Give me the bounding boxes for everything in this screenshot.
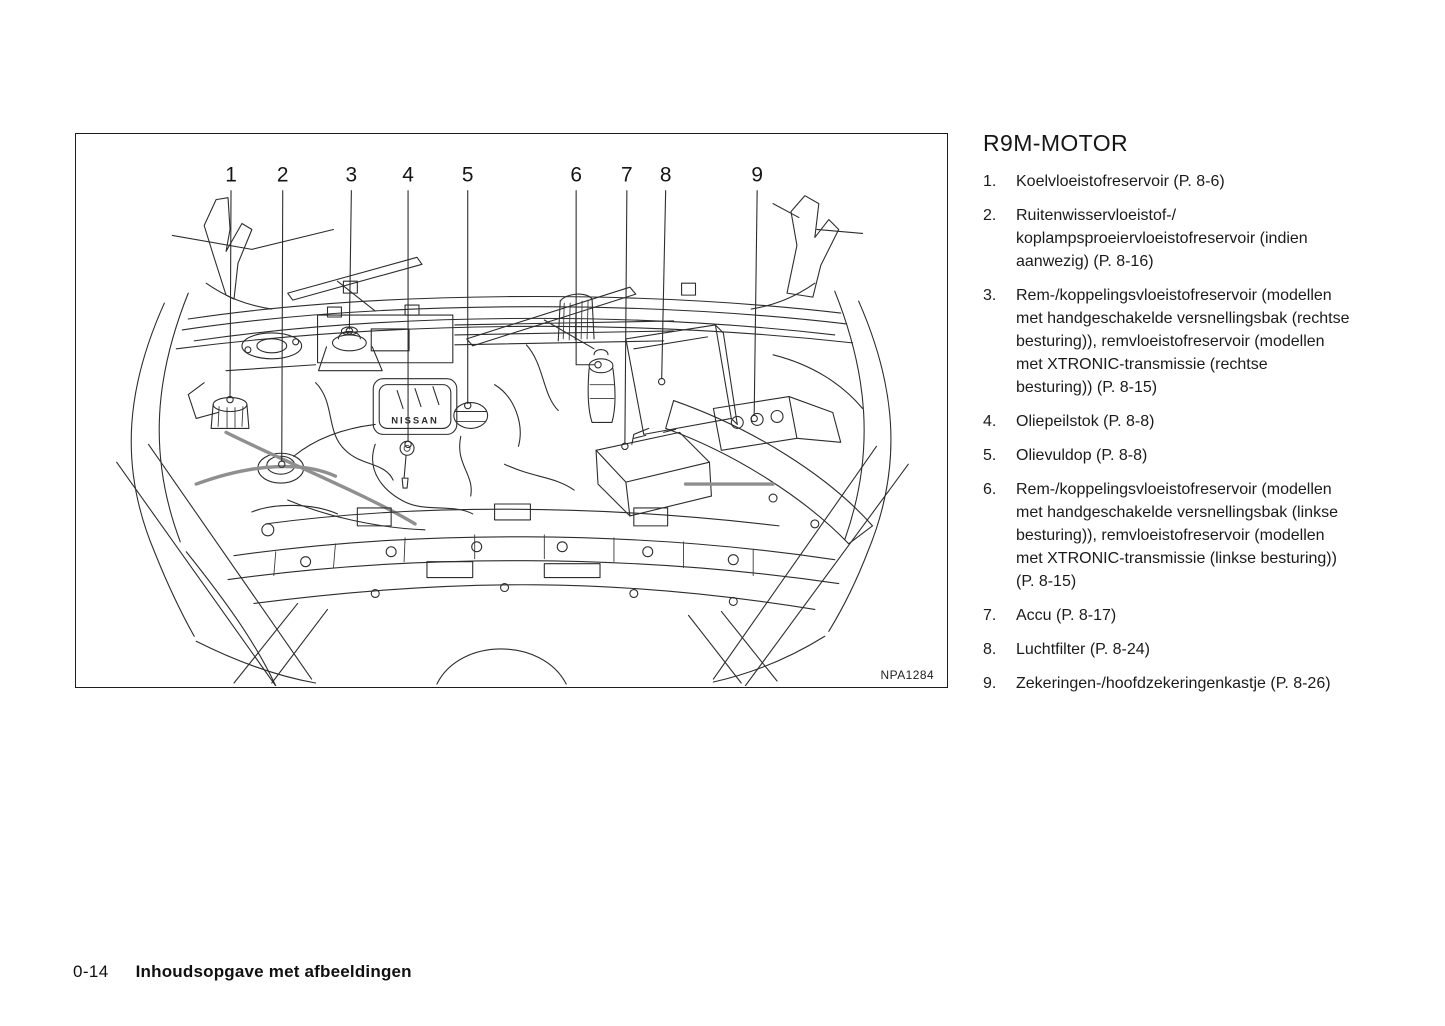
legend-item-text: Koelvloeistofreservoir (P. 8-6) xyxy=(1016,170,1439,193)
legend-item: 1. Koelvloeistofreservoir (P. 8-6) xyxy=(983,170,1439,193)
legend-item-line: Ruitenwisservloeistof-/ xyxy=(1016,204,1439,227)
legend-item-line: met handgeschakelde versnellingsbak (lin… xyxy=(1016,501,1439,524)
legend-item-line: besturing)) (P. 8-15) xyxy=(1016,376,1439,399)
legend-item-number: 4. xyxy=(983,410,1016,433)
legend-item-text: Zekeringen-/hoofdzekeringenkastje (P. 8-… xyxy=(1016,672,1439,695)
legend-item-line: Accu (P. 8-17) xyxy=(1016,604,1439,627)
firewall xyxy=(226,305,674,371)
legend-item-number: 1. xyxy=(983,170,1016,193)
engine-bay-illustration: NISSAN xyxy=(76,134,946,686)
hood-hinge-left xyxy=(172,198,333,309)
legend-item-line: aanwezig) (P. 8-16) xyxy=(1016,250,1439,273)
legend-item-line: Zekeringen-/hoofdzekeringenkastje (P. 8-… xyxy=(1016,672,1439,695)
legend-item-number: 3. xyxy=(983,284,1016,399)
washer-hose xyxy=(196,432,415,524)
air-filter-box xyxy=(626,325,737,444)
callout-number: 4 xyxy=(402,164,414,187)
frame-rail-right xyxy=(666,401,873,544)
manual-page: NISSAN xyxy=(0,0,1445,1026)
legend-item-line: besturing)), remvloeistofreservoir (mode… xyxy=(1016,524,1439,547)
legend-item: 4. Oliepeilstok (P. 8-8) xyxy=(983,410,1439,433)
legend-item-line: met XTRONIC-transmissie (rechtse xyxy=(1016,353,1439,376)
legend-item-text: Luchtfilter (P. 8-24) xyxy=(1016,638,1439,661)
bumper-fascia xyxy=(196,603,825,684)
legend-item-text: Accu (P. 8-17) xyxy=(1016,604,1439,627)
legend-item-line: koplampsproeiervloeistofreservoir (indie… xyxy=(1016,227,1439,250)
legend-item-line: met handgeschakelde versnellingsbak (rec… xyxy=(1016,307,1439,330)
callout-leader-line xyxy=(576,191,594,365)
callout-leader-line xyxy=(282,191,283,462)
legend-item-text: Rem-/koppelingsvloeistofreservoir (model… xyxy=(1016,284,1439,399)
engine-bay-figure: NISSAN xyxy=(75,133,948,688)
legend-item-line: besturing)), remvloeistofreservoir (mode… xyxy=(1016,330,1439,353)
callout-number: 8 xyxy=(660,164,672,187)
legend-item-line: Rem-/koppelingsvloeistofreservoir (model… xyxy=(1016,478,1439,501)
footer-section-title: Inhoudsopgave met afbeeldingen xyxy=(136,962,412,981)
reservoir-right xyxy=(588,350,615,423)
engine-cover: NISSAN xyxy=(373,379,457,435)
page-footer: 0-14Inhoudsopgave met afbeeldingen xyxy=(73,962,412,982)
radiator-support xyxy=(228,504,839,609)
legend-item: 5. Olievuldop (P. 8-8) xyxy=(983,444,1439,467)
legend-item: 7. Accu (P. 8-17) xyxy=(983,604,1439,627)
legend-item-number: 5. xyxy=(983,444,1016,467)
legend-item-line: Rem-/koppelingsvloeistofreservoir (model… xyxy=(1016,284,1439,307)
legend-item-line: Olievuldop (P. 8-8) xyxy=(1016,444,1439,467)
callout-dot xyxy=(405,441,411,447)
legend-item-text: Oliepeilstok (P. 8-8) xyxy=(1016,410,1439,433)
legend-list: 1. Koelvloeistofreservoir (P. 8-6) 2. Ru… xyxy=(983,170,1439,695)
legend-panel: R9M-MOTOR 1. Koelvloeistofreservoir (P. … xyxy=(983,130,1439,706)
callout-number: 7 xyxy=(621,164,633,187)
callout-leader-line xyxy=(230,191,231,397)
legend-item-number: 9. xyxy=(983,672,1016,695)
callout-number: 3 xyxy=(346,164,358,187)
right-fender xyxy=(713,291,908,686)
figure-code: NPA1284 xyxy=(881,668,935,682)
legend-item: 9. Zekeringen-/hoofdzekeringenkastje (P.… xyxy=(983,672,1439,695)
legend-item: 3. Rem-/koppelingsvloeistofreservoir (mo… xyxy=(983,284,1439,399)
legend-item: 6. Rem-/koppelingsvloeistofreservoir (mo… xyxy=(983,478,1439,593)
hood-hinge-right xyxy=(751,196,862,309)
callout-leader-line xyxy=(349,191,351,329)
callout-number: 9 xyxy=(751,164,763,187)
callout-leader-line xyxy=(625,191,627,444)
legend-item-number: 7. xyxy=(983,604,1016,627)
callout-leader-line xyxy=(662,191,666,379)
callout-number: 6 xyxy=(570,164,582,187)
legend-item-number: 6. xyxy=(983,478,1016,593)
strut-mount-left xyxy=(242,333,302,359)
callout-dot xyxy=(595,362,601,368)
legend-item-number: 8. xyxy=(983,638,1016,661)
legend-item-line: Luchtfilter (P. 8-24) xyxy=(1016,638,1439,661)
legend-item-text: Ruitenwisservloeistof-/koplampsproeiervl… xyxy=(1016,204,1439,273)
legend-item-text: Rem-/koppelingsvloeistofreservoir (model… xyxy=(1016,478,1439,593)
callout-number: 5 xyxy=(462,164,474,187)
callout-number: 2 xyxy=(277,164,289,187)
legend-item-line: Oliepeilstok (P. 8-8) xyxy=(1016,410,1439,433)
page-number: 0-14 xyxy=(73,962,109,981)
legend-title: R9M-MOTOR xyxy=(983,130,1439,157)
battery xyxy=(596,429,711,516)
legend-item-number: 2. xyxy=(983,204,1016,273)
engine-cover-label: NISSAN xyxy=(391,415,439,426)
legend-item-line: (P. 8-15) xyxy=(1016,570,1439,593)
legend-item-text: Olievuldop (P. 8-8) xyxy=(1016,444,1439,467)
legend-item: 2. Ruitenwisservloeistof-/koplampsproeie… xyxy=(983,204,1439,273)
legend-item: 8. Luchtfilter (P. 8-24) xyxy=(983,638,1439,661)
callout-dot xyxy=(751,415,757,421)
oil-dipstick xyxy=(400,441,414,488)
legend-item-line: Koelvloeistofreservoir (P. 8-6) xyxy=(1016,170,1439,193)
callout-leader-line xyxy=(754,191,757,416)
callout-number: 1 xyxy=(225,164,237,187)
legend-item-line: met XTRONIC-transmissie (linkse besturin… xyxy=(1016,547,1439,570)
hood-cowl xyxy=(176,257,852,349)
fuse-box xyxy=(713,397,840,451)
callout-dot xyxy=(658,378,664,384)
